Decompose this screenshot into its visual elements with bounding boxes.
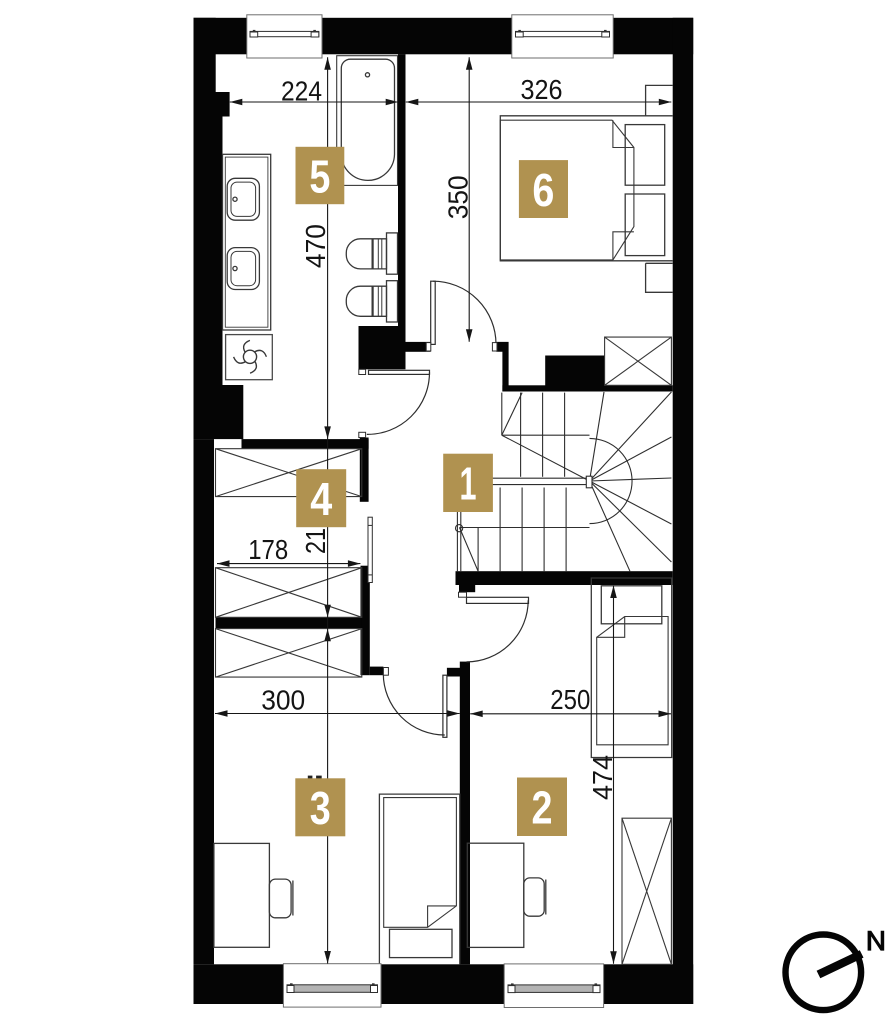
- svg-text:470: 470: [300, 224, 331, 268]
- svg-text:21: 21: [300, 528, 331, 554]
- svg-text:326: 326: [521, 74, 563, 105]
- svg-text:250: 250: [550, 684, 590, 715]
- svg-text:474: 474: [587, 755, 618, 800]
- svg-text:300: 300: [261, 685, 305, 716]
- svg-text:2: 2: [532, 782, 553, 834]
- svg-text:224: 224: [281, 75, 322, 106]
- svg-text:6: 6: [532, 164, 554, 216]
- svg-text:350: 350: [442, 175, 473, 219]
- svg-text:178: 178: [248, 534, 288, 565]
- svg-text:1: 1: [460, 458, 477, 510]
- svg-text:3: 3: [310, 782, 331, 834]
- svg-text:5: 5: [309, 150, 330, 202]
- svg-text:4: 4: [310, 473, 332, 525]
